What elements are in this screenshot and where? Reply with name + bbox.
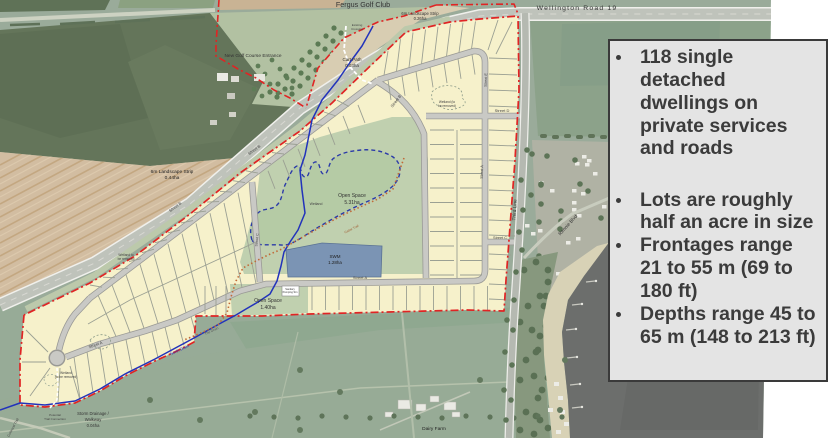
svg-text:Walkway: Walkway bbox=[85, 417, 103, 422]
svg-text:Trail Connection: Trail Connection bbox=[44, 417, 66, 421]
svg-text:Cart Path: Cart Path bbox=[342, 57, 362, 62]
svg-text:Street A: Street A bbox=[353, 275, 368, 280]
svg-text:Pumping Stn: Pumping Stn bbox=[283, 290, 298, 294]
svg-text:New Golf Course Entrance: New Golf Course Entrance bbox=[224, 53, 281, 59]
svg-text:Wetland: Wetland bbox=[310, 202, 323, 206]
svg-text:Street C: Street C bbox=[493, 236, 507, 240]
svg-text:Open Space: Open Space bbox=[338, 193, 366, 199]
svg-text:(to be removed): (to be removed) bbox=[55, 375, 78, 379]
svg-text:Street D: Street D bbox=[495, 108, 510, 113]
svg-text:1.40ha: 1.40ha bbox=[260, 305, 276, 311]
svg-text:Crossing: Crossing bbox=[351, 27, 363, 31]
svg-text:Street A: Street A bbox=[480, 165, 484, 179]
svg-text:Dairy Farm: Dairy Farm bbox=[422, 426, 446, 432]
svg-text:be removed: be removed bbox=[118, 257, 135, 261]
svg-text:0.26ha: 0.26ha bbox=[414, 16, 427, 21]
svg-text:0.44ha: 0.44ha bbox=[165, 175, 180, 181]
svg-text:Street E: Street E bbox=[484, 73, 488, 87]
svg-text:SWM: SWM bbox=[330, 254, 341, 259]
svg-text:Wellington Road 19: Wellington Road 19 bbox=[537, 5, 618, 12]
svg-text:6m Landscape Strip: 6m Landscape Strip bbox=[151, 169, 194, 175]
svg-text:1.28ha: 1.28ha bbox=[328, 260, 342, 265]
svg-text:0.03ha: 0.03ha bbox=[345, 63, 359, 68]
svg-text:0.04ha: 0.04ha bbox=[87, 423, 100, 428]
svg-text:be removed): be removed) bbox=[438, 104, 456, 108]
svg-text:Storm Drainage /: Storm Drainage / bbox=[77, 411, 109, 416]
svg-text:5.31ha: 5.31ha bbox=[344, 200, 360, 206]
svg-text:Open Space: Open Space bbox=[254, 298, 282, 304]
svg-text:Fergus Golf Club: Fergus Golf Club bbox=[336, 0, 390, 9]
